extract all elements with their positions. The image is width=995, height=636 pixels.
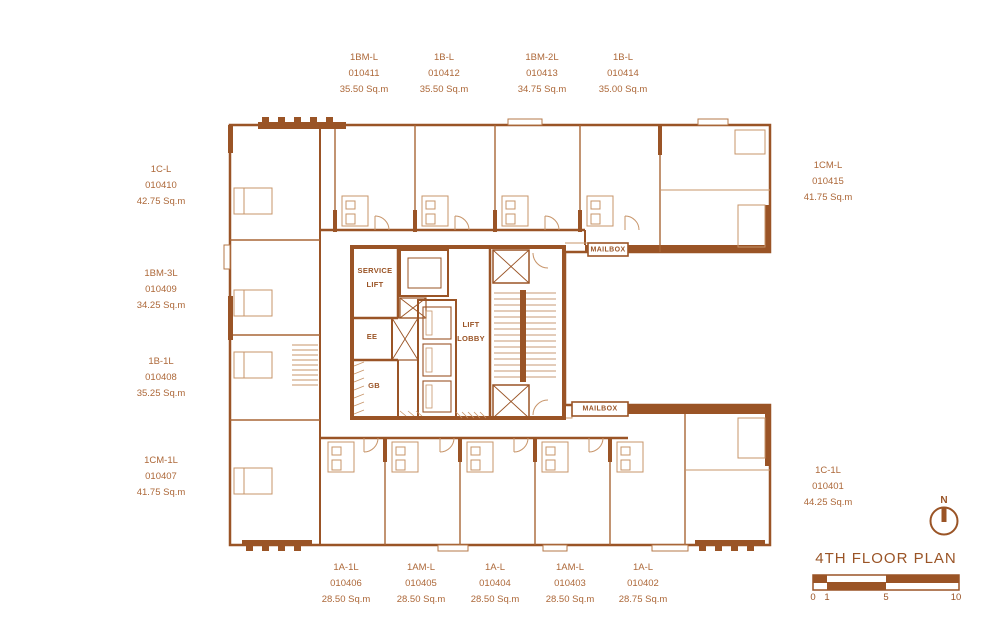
unit-area: 35.50 Sq.m: [420, 82, 469, 98]
unit-name: 1B-L: [420, 50, 469, 66]
unit-label: 1C-1L 010401 44.25 Sq.m: [804, 463, 853, 511]
ee-room-label: EE: [367, 330, 378, 344]
unit-name: 1BM-2L: [518, 50, 567, 66]
unit-area: 28.50 Sq.m: [471, 592, 520, 608]
unit-area: 28.50 Sq.m: [397, 592, 446, 608]
unit-number: 010407: [137, 469, 186, 485]
scale-bar: [810, 573, 970, 595]
unit-area: 35.50 Sq.m: [340, 82, 389, 98]
scale-tick-1: 1: [824, 592, 829, 603]
unit-number: 010405: [397, 576, 446, 592]
unit-area: 34.25 Sq.m: [137, 298, 186, 314]
unit-label: 1AM-L 010405 28.50 Sq.m: [397, 560, 446, 608]
mailbox-walls: [585, 245, 770, 414]
unit-name: 1AM-L: [397, 560, 446, 576]
unit-area: 34.75 Sq.m: [518, 82, 567, 98]
mailbox-label-top: MAILBOX: [590, 247, 625, 254]
unit-label: 1AM-L 010403 28.50 Sq.m: [546, 560, 595, 608]
north-compass-icon: [924, 503, 964, 543]
unit-name: 1C-1L: [804, 463, 853, 479]
service-lift-label: SERVICE LIFT: [358, 264, 393, 292]
scale-tick-10: 10: [951, 592, 962, 603]
unit-label: 1CM-1L 010407 41.75 Sq.m: [137, 453, 186, 501]
unit-number: 010410: [137, 178, 186, 194]
unit-name: 1B-1L: [137, 354, 186, 370]
shear-walls: [228, 125, 770, 466]
unit-number: 010404: [471, 576, 520, 592]
unit-area: 28.75 Sq.m: [619, 592, 668, 608]
unit-name: 1B-L: [599, 50, 648, 66]
unit-name: 1BM-L: [340, 50, 389, 66]
unit-label: 1C-L 010410 42.75 Sq.m: [137, 162, 186, 210]
unit-area: 42.75 Sq.m: [137, 194, 186, 210]
unit-label: 1B-1L 010408 35.25 Sq.m: [137, 354, 186, 402]
unit-number: 010411: [340, 66, 389, 82]
unit-label: 1A-1L 010406 28.50 Sq.m: [322, 560, 371, 608]
unit-label: 1CM-L 010415 41.75 Sq.m: [804, 158, 853, 206]
gb-room-label: GB: [368, 379, 380, 393]
unit-label: 1B-L 010414 35.00 Sq.m: [599, 50, 648, 98]
unit-label: 1A-L 010402 28.75 Sq.m: [619, 560, 668, 608]
unit-area: 35.00 Sq.m: [599, 82, 648, 98]
unit-area: 41.75 Sq.m: [804, 190, 853, 206]
unit-number: 010414: [599, 66, 648, 82]
unit-number: 010415: [804, 174, 853, 190]
mailbox-label-bottom: MAILBOX: [582, 406, 617, 413]
unit-number: 010409: [137, 282, 186, 298]
page-title: 4TH FLOOR PLAN: [815, 550, 957, 567]
unit-label: 1BM-2L 010413 34.75 Sq.m: [518, 50, 567, 98]
unit-label: 1A-L 010404 28.50 Sq.m: [471, 560, 520, 608]
unit-area: 44.25 Sq.m: [804, 495, 853, 511]
scale-tick-5: 5: [883, 592, 888, 603]
unit-number: 010401: [804, 479, 853, 495]
scale-tick-0: 0: [810, 592, 815, 603]
unit-number: 010412: [420, 66, 469, 82]
unit-area: 28.50 Sq.m: [322, 592, 371, 608]
unit-label: 1BM-L 010411 35.50 Sq.m: [340, 50, 389, 98]
unit-area: 28.50 Sq.m: [546, 592, 595, 608]
unit-label: 1B-L 010412 35.50 Sq.m: [420, 50, 469, 98]
unit-number: 010403: [546, 576, 595, 592]
lift-lobby-label: LIFT LOBBY: [457, 318, 485, 346]
unit-name: 1AM-L: [546, 560, 595, 576]
unit-name: 1A-L: [619, 560, 668, 576]
floor-plan-page: 1BM-L 010411 35.50 Sq.m 1B-L 010412 35.5…: [0, 0, 995, 636]
unit-name: 1A-1L: [322, 560, 371, 576]
unit-area: 35.25 Sq.m: [137, 386, 186, 402]
unit-label: 1BM-3L 010409 34.25 Sq.m: [137, 266, 186, 314]
unit-area: 41.75 Sq.m: [137, 485, 186, 501]
unit-number: 010402: [619, 576, 668, 592]
unit-number: 010413: [518, 66, 567, 82]
unit-name: 1CM-L: [804, 158, 853, 174]
unit-name: 1BM-3L: [137, 266, 186, 282]
unit-name: 1C-L: [137, 162, 186, 178]
mailbox-boxes: [572, 243, 628, 416]
unit-number: 010406: [322, 576, 371, 592]
unit-name: 1CM-1L: [137, 453, 186, 469]
unit-number: 010408: [137, 370, 186, 386]
unit-name: 1A-L: [471, 560, 520, 576]
floor-plan-drawing: [0, 0, 995, 636]
